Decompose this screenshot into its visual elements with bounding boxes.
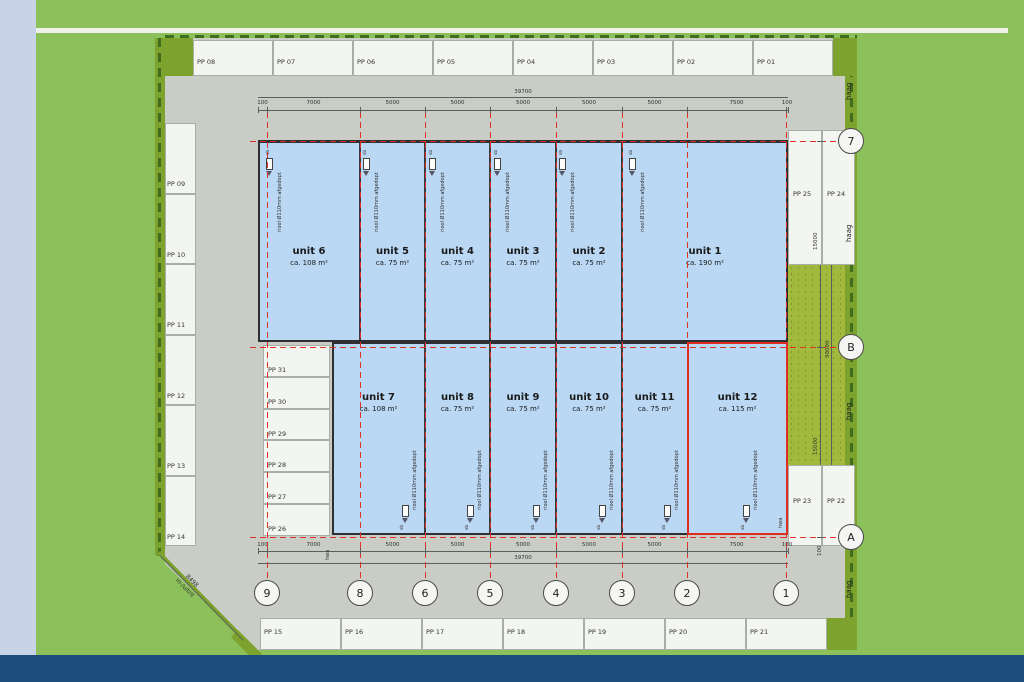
dim-tick	[622, 107, 623, 113]
door-symbol	[533, 505, 540, 517]
sewer-pipe-label: riool Ø110mm afgedopt	[374, 172, 380, 232]
sewer-pipe-label: riool Ø110mm afgedopt	[505, 172, 511, 232]
dim-tick	[258, 548, 259, 554]
unit-name: unit 11	[615, 392, 695, 403]
dim-tick	[556, 107, 557, 113]
dim-segment-label: 100	[817, 546, 823, 557]
sewer-pipe-label: riool Ø110mm afgedopt	[609, 450, 615, 510]
dim-tick	[556, 548, 557, 554]
door-symbol	[363, 158, 370, 170]
parking-stall-label: PP 30	[268, 398, 286, 406]
door-symbol	[429, 158, 436, 170]
sewer-pipe-label: riool Ø110mm afgedopt	[753, 450, 759, 510]
dim-segment-label: 5000	[513, 100, 533, 106]
door-symbol	[559, 158, 566, 170]
unit-12-red-outline	[687, 342, 788, 535]
parking-stall-label: PP 18	[507, 628, 525, 636]
unit-name: unit 6	[269, 246, 349, 257]
unit-area: ca. 108 m²	[269, 259, 349, 267]
dim-tick	[425, 548, 426, 554]
dim-bottom-seg-line	[258, 551, 788, 552]
parking-stall-label: PP 14	[167, 533, 185, 541]
hedge-corner-topleft	[165, 38, 193, 76]
grid-axis-bubble: 2	[674, 580, 700, 606]
dim-tick	[490, 548, 491, 554]
dim-total-label: 39700	[503, 89, 543, 95]
grid-axis-bubble: 8	[347, 580, 373, 606]
grid-axis-line	[250, 537, 838, 538]
dim-total-label: 30000	[825, 341, 831, 359]
sewer-pipe-label: riool Ø110mm afgedopt	[674, 450, 680, 510]
dim-top-total-line	[258, 97, 788, 98]
dim-segment-label: 7000	[304, 542, 324, 548]
sewer-tag-label: sb	[662, 525, 667, 530]
parking-stall-label: PP 20	[669, 628, 687, 636]
grid-axis-line	[250, 141, 838, 142]
dim-total-label: 39700	[503, 555, 543, 561]
door-symbol	[467, 505, 474, 517]
dim-tick	[258, 107, 259, 113]
hedge-label: haag	[845, 225, 853, 242]
parking-stall-label: PP 04	[517, 58, 535, 66]
hedge-line-top	[165, 35, 857, 38]
dim-segment-label: 100	[777, 542, 797, 548]
parking-stall-label: PP 03	[597, 58, 615, 66]
parking-stall-label: PP 23	[793, 497, 811, 505]
door-swing-icon	[629, 171, 635, 176]
sewer-pipe-label: riool Ø110mm afgedopt	[412, 450, 418, 510]
sewer-tag-label: sb	[429, 150, 434, 155]
door-symbol	[599, 505, 606, 517]
dim-segment-label: 100	[253, 100, 273, 106]
sewer-tag-label: sb	[363, 150, 368, 155]
dim-tick	[817, 141, 824, 142]
sheet-top-edge	[36, 28, 1008, 33]
dim-tick	[788, 548, 789, 554]
dim-segment-label: 5000	[448, 542, 468, 548]
dim-segment-label: 5000	[448, 100, 468, 106]
unit-area: ca. 75 m²	[549, 259, 629, 267]
dim-segment-label: 15000	[813, 438, 819, 456]
sewer-pipe-label: riool Ø110mm afgedopt	[543, 450, 549, 510]
parking-stall-label: PP 07	[277, 58, 295, 66]
hedge-label: haag	[845, 581, 853, 598]
grid-axis-bubble: 4	[543, 580, 569, 606]
dim-segment-label: 5000	[579, 542, 599, 548]
hedge-corner-bottomright	[827, 618, 857, 650]
sewer-tag-label: sb	[559, 150, 564, 155]
sewer-pipe-label: riool Ø110mm afgedopt	[277, 172, 283, 232]
sewer-tag-label: sb	[494, 150, 499, 155]
parking-stall-label: PP 01	[757, 58, 775, 66]
grid-axis-bubble: B	[838, 334, 864, 360]
grid-axis-line	[250, 347, 838, 348]
sewer-pipe-label: riool Ø110mm afgedopt	[640, 172, 646, 232]
door-swing-icon	[402, 518, 408, 523]
sewer-tag-label: sb	[741, 525, 746, 530]
unit-area: ca. 190 m²	[665, 259, 745, 267]
dim-tick	[490, 107, 491, 113]
dim-segment-label: 7000	[304, 100, 324, 106]
door-swing-icon	[664, 518, 670, 523]
door-swing-icon	[743, 518, 749, 523]
site-plan-drawing: 8498 in-/uitrit haag haag hwa hwa PP 08P…	[0, 0, 1024, 682]
parking-stall-label: PP 29	[268, 430, 286, 438]
sewer-pipe-label: riool Ø110mm afgedopt	[440, 172, 446, 232]
unit-name: unit 2	[549, 246, 629, 257]
grid-axis-bubble: 5	[477, 580, 503, 606]
parking-stall-label: PP 24	[827, 190, 845, 198]
dim-tick	[786, 107, 787, 113]
dim-segment-label: 5000	[383, 100, 403, 106]
dim-tick	[360, 548, 361, 554]
sewer-pipe-label: riool Ø110mm afgedopt	[477, 450, 483, 510]
dim-bottom-total-line	[258, 563, 788, 564]
unit-name: unit 1	[665, 246, 745, 257]
parking-stall-label: PP 22	[827, 497, 845, 505]
dim-segment-label: 5000	[645, 542, 665, 548]
page-margin-left	[0, 0, 36, 682]
unit-area: ca. 75 m²	[615, 405, 695, 413]
sewer-tag-label: sb	[531, 525, 536, 530]
unit-area: ca. 108 m²	[339, 405, 419, 413]
parking-stall-label: PP 27	[268, 493, 286, 501]
parking-stall-label: PP 25	[793, 190, 811, 198]
dim-segment-label: 15000	[813, 233, 819, 251]
dim-tick	[267, 107, 268, 113]
rain-drain-label-right: hwa	[778, 518, 784, 528]
dim-segment-label: 5000	[383, 542, 403, 548]
dim-tick	[425, 107, 426, 113]
dim-segment-label: 100	[777, 100, 797, 106]
unit-name: unit 12	[698, 392, 778, 403]
building-top-band	[258, 140, 788, 342]
parking-stall-label: PP 09	[167, 180, 185, 188]
parking-stall-label: PP 16	[345, 628, 363, 636]
door-swing-icon	[467, 518, 473, 523]
parking-stall-label: PP 19	[588, 628, 606, 636]
door-swing-icon	[559, 171, 565, 176]
door-swing-icon	[363, 171, 369, 176]
door-symbol	[629, 158, 636, 170]
door-symbol	[494, 158, 501, 170]
parking-stall-label: PP 11	[167, 321, 185, 329]
door-symbol	[664, 505, 671, 517]
grid-axis-bubble: 9	[254, 580, 280, 606]
hedge-block-right	[788, 265, 845, 465]
parking-stall-label: PP 05	[437, 58, 455, 66]
parking-stall-label: PP 31	[268, 366, 286, 374]
dim-tick	[687, 548, 688, 554]
grid-axis-bubble: 3	[609, 580, 635, 606]
parking-stall-label: PP 17	[426, 628, 444, 636]
dim-tick	[360, 107, 361, 113]
door-swing-icon	[494, 171, 500, 176]
grid-axis-bubble: 1	[773, 580, 799, 606]
hedge-label: haag	[845, 403, 853, 420]
dim-tick	[788, 107, 789, 113]
parking-stall-label: PP 12	[167, 392, 185, 400]
dim-tick	[622, 548, 623, 554]
dim-segment-label: 7500	[727, 100, 747, 106]
dim-tick	[267, 548, 268, 554]
dim-top-seg-line	[258, 110, 788, 111]
rain-drain-label-left: hwa	[325, 550, 331, 560]
unit-name: unit 7	[339, 392, 419, 403]
parking-stall-label: PP 21	[750, 628, 768, 636]
door-symbol	[402, 505, 409, 517]
parking-stall-label: PP 26	[268, 525, 286, 533]
parking-stall-label: PP 10	[167, 251, 185, 259]
dim-segment-label: 5000	[645, 100, 665, 106]
hedge-label: haag	[845, 83, 853, 100]
dim-tick	[687, 107, 688, 113]
parking-stall-label: PP 06	[357, 58, 375, 66]
unit-area: ca. 115 m²	[698, 405, 778, 413]
parking-stall-label: PP 15	[264, 628, 282, 636]
parking-stall-label: PP 13	[167, 462, 185, 470]
parking-stall-label: PP 02	[677, 58, 695, 66]
parking-stall-label: PP 08	[197, 58, 215, 66]
footer-band	[0, 655, 1024, 682]
sewer-tag-label: sb	[629, 150, 634, 155]
sewer-tag-label: sb	[597, 525, 602, 530]
door-swing-icon	[429, 171, 435, 176]
sewer-pipe-label: riool Ø110mm afgedopt	[570, 172, 576, 232]
grid-axis-bubble: 7	[838, 128, 864, 154]
parking-stall-label: PP 28	[268, 461, 286, 469]
grid-axis-bubble: A	[838, 524, 864, 550]
sewer-tag-label: sb	[400, 525, 405, 530]
dim-segment-label: 100	[253, 542, 273, 548]
door-swing-icon	[599, 518, 605, 523]
door-symbol	[743, 505, 750, 517]
sewer-tag-label: sb	[465, 525, 470, 530]
dim-segment-label: 5000	[513, 542, 533, 548]
parking-stall	[788, 465, 822, 546]
hedge-dash-left	[158, 38, 161, 556]
door-swing-icon	[533, 518, 539, 523]
dim-tick	[817, 347, 824, 348]
dim-segment-label: 7500	[727, 542, 747, 548]
dim-tick	[817, 537, 824, 538]
grid-axis-bubble: 6	[412, 580, 438, 606]
dim-tick	[786, 548, 787, 554]
dim-segment-label: 5000	[579, 100, 599, 106]
hedge-corner-topright	[833, 38, 857, 76]
